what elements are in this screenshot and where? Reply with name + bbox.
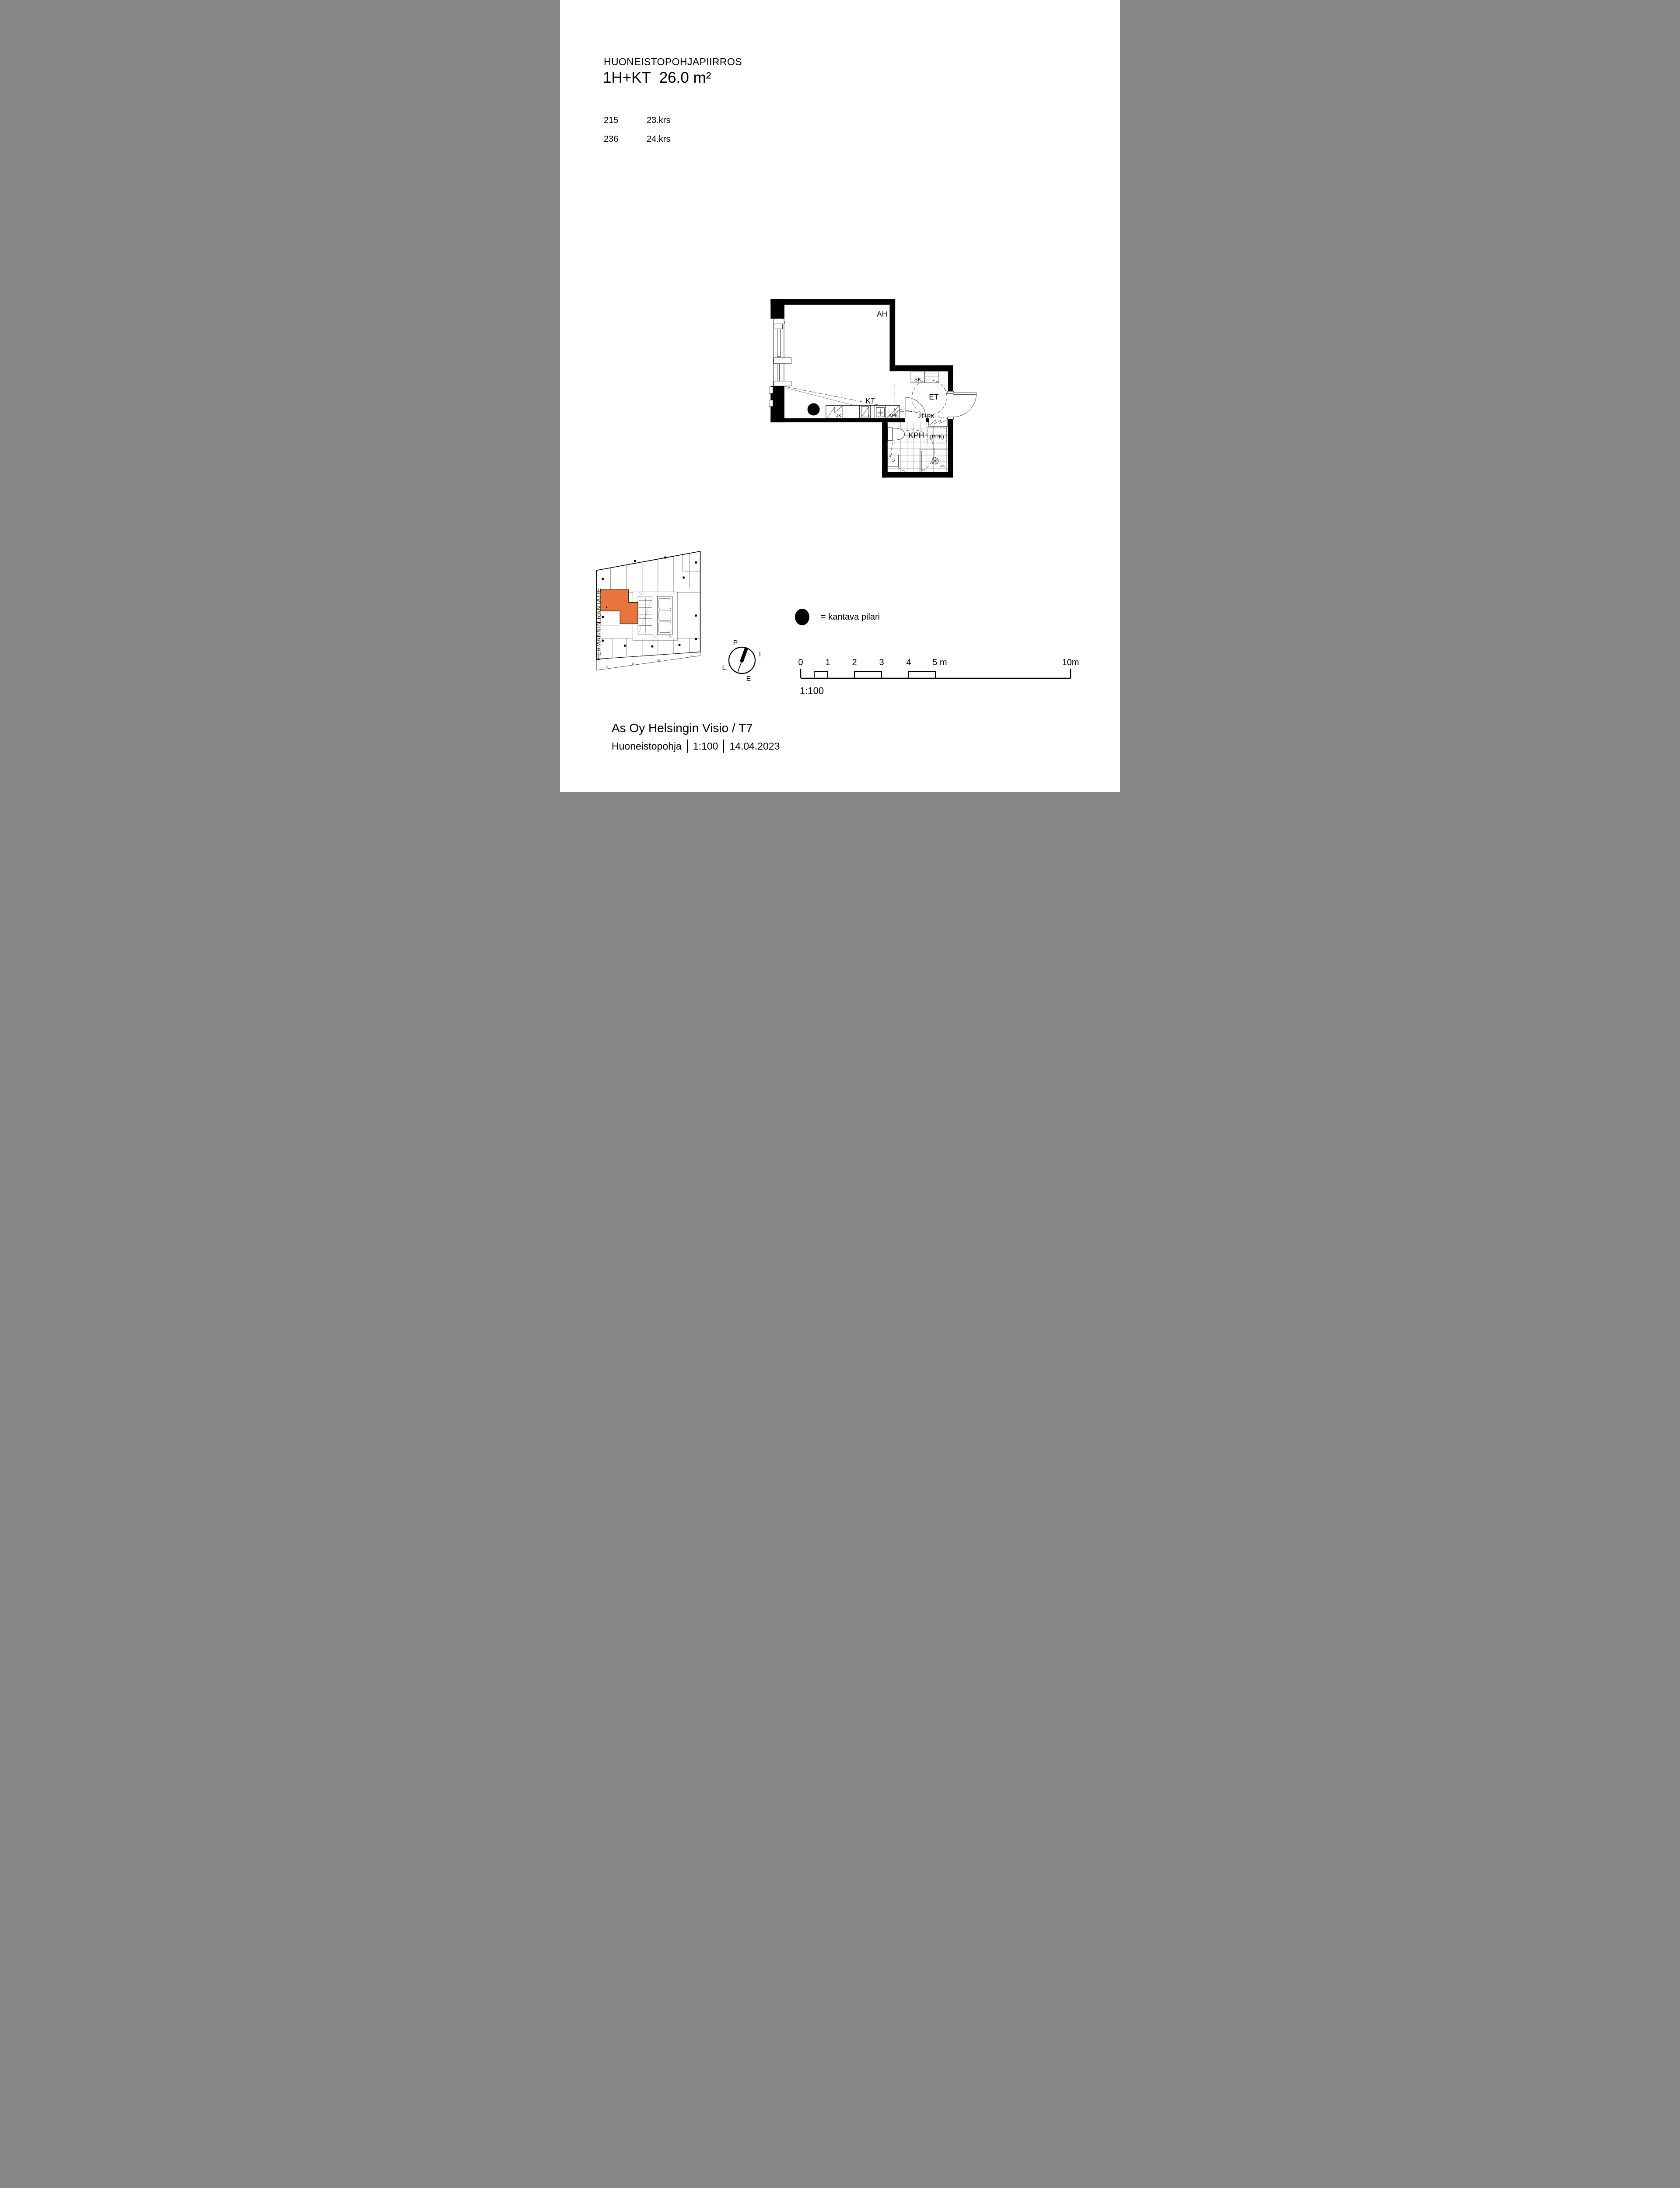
unit-floor: 24.krs xyxy=(647,134,670,144)
footer-titleblock: As Oy Helsingin Visio / T7 Huoneistopohj… xyxy=(612,721,780,753)
fixture-label-l: L xyxy=(868,413,871,418)
floor-drain-symbol xyxy=(940,465,945,467)
separator-bar xyxy=(723,740,724,753)
street-name-label: HERMANNIN RANTATIE xyxy=(595,588,602,660)
compass-north-label: P xyxy=(733,639,738,647)
compass-south-label: E xyxy=(746,675,751,683)
load-bearing-pillar xyxy=(808,403,820,415)
building-overview-map xyxy=(591,545,705,674)
fixture-label-ppk: (PPK) xyxy=(930,434,944,440)
unit-number: 215 xyxy=(604,116,647,126)
elevator-core xyxy=(657,596,672,635)
room-label-kph: KPH xyxy=(909,431,924,440)
separator-bar xyxy=(687,740,688,753)
fixture-label-apk: APK xyxy=(889,413,898,418)
scale-tick-4: 4 xyxy=(906,658,911,667)
legend-text: = kantava pilari xyxy=(821,612,880,622)
footer-meta-line: Huoneistopohja 1:100 14.04.2023 xyxy=(612,740,780,753)
utility-cabinet xyxy=(929,419,948,426)
project-name: As Oy Helsingin Visio / T7 xyxy=(612,721,780,735)
shower xyxy=(920,449,948,471)
apartment-unit-list: 215 23.krs 236 24.krs xyxy=(604,116,670,144)
entry-door xyxy=(948,391,976,419)
unit-row: 236 24.krs xyxy=(604,134,670,144)
room-label-et: ET xyxy=(929,393,939,401)
scale-ratio-label: 1:100 xyxy=(800,685,824,697)
legend: = kantava pilari xyxy=(795,609,880,625)
room-label-sk: SK xyxy=(914,377,921,383)
scale-tick-10: 10m xyxy=(1062,658,1079,667)
footer-date: 14.04.2023 xyxy=(729,740,780,752)
unit-row: 215 23.krs xyxy=(604,116,670,126)
scale-tick-0: 0 xyxy=(798,658,803,667)
scale-tick-5: 5 m xyxy=(932,658,947,667)
footer-scale: 1:100 xyxy=(693,740,718,752)
scale-tick-2: 2 xyxy=(852,658,857,667)
scale-tick-3: 3 xyxy=(879,658,884,667)
apartment-type-title: 1H+KT 26.0 m² xyxy=(603,69,711,87)
room-label-kt: KT xyxy=(865,396,875,405)
fixture-label-jtrk: JT+RK xyxy=(918,413,934,419)
apartment-floorplan-drawing: AH KT ET KPH SK JT+RK (PPK) JK L APK xyxy=(769,297,983,479)
footer-doc-type: Huoneistopohja xyxy=(612,740,682,752)
window xyxy=(773,319,791,386)
compass-needle xyxy=(738,648,747,673)
toilet xyxy=(888,428,905,440)
unit-number: 236 xyxy=(604,134,647,144)
compass-east-label: I xyxy=(759,651,761,658)
unit-floor: 23.krs xyxy=(647,116,670,126)
washbasin xyxy=(888,455,898,466)
stair-core xyxy=(638,596,653,635)
scale-tick-1: 1 xyxy=(825,658,830,667)
compass-rose: P I E L xyxy=(718,636,766,684)
room-label-ah: AH xyxy=(877,309,887,318)
load-bearing-pillar-icon xyxy=(795,609,809,625)
floorplan-document-page: HUONEISTOPOHJAPIIRROS 1H+KT 26.0 m² 215 … xyxy=(560,0,1120,792)
document-type-title: HUONEISTOPOHJAPIIRROS xyxy=(604,56,742,68)
fixture-label-jk: JK xyxy=(836,413,841,418)
compass-west-label: L xyxy=(722,664,726,671)
scale-bar: 0 1 2 3 4 5 m 10m xyxy=(798,656,1087,683)
